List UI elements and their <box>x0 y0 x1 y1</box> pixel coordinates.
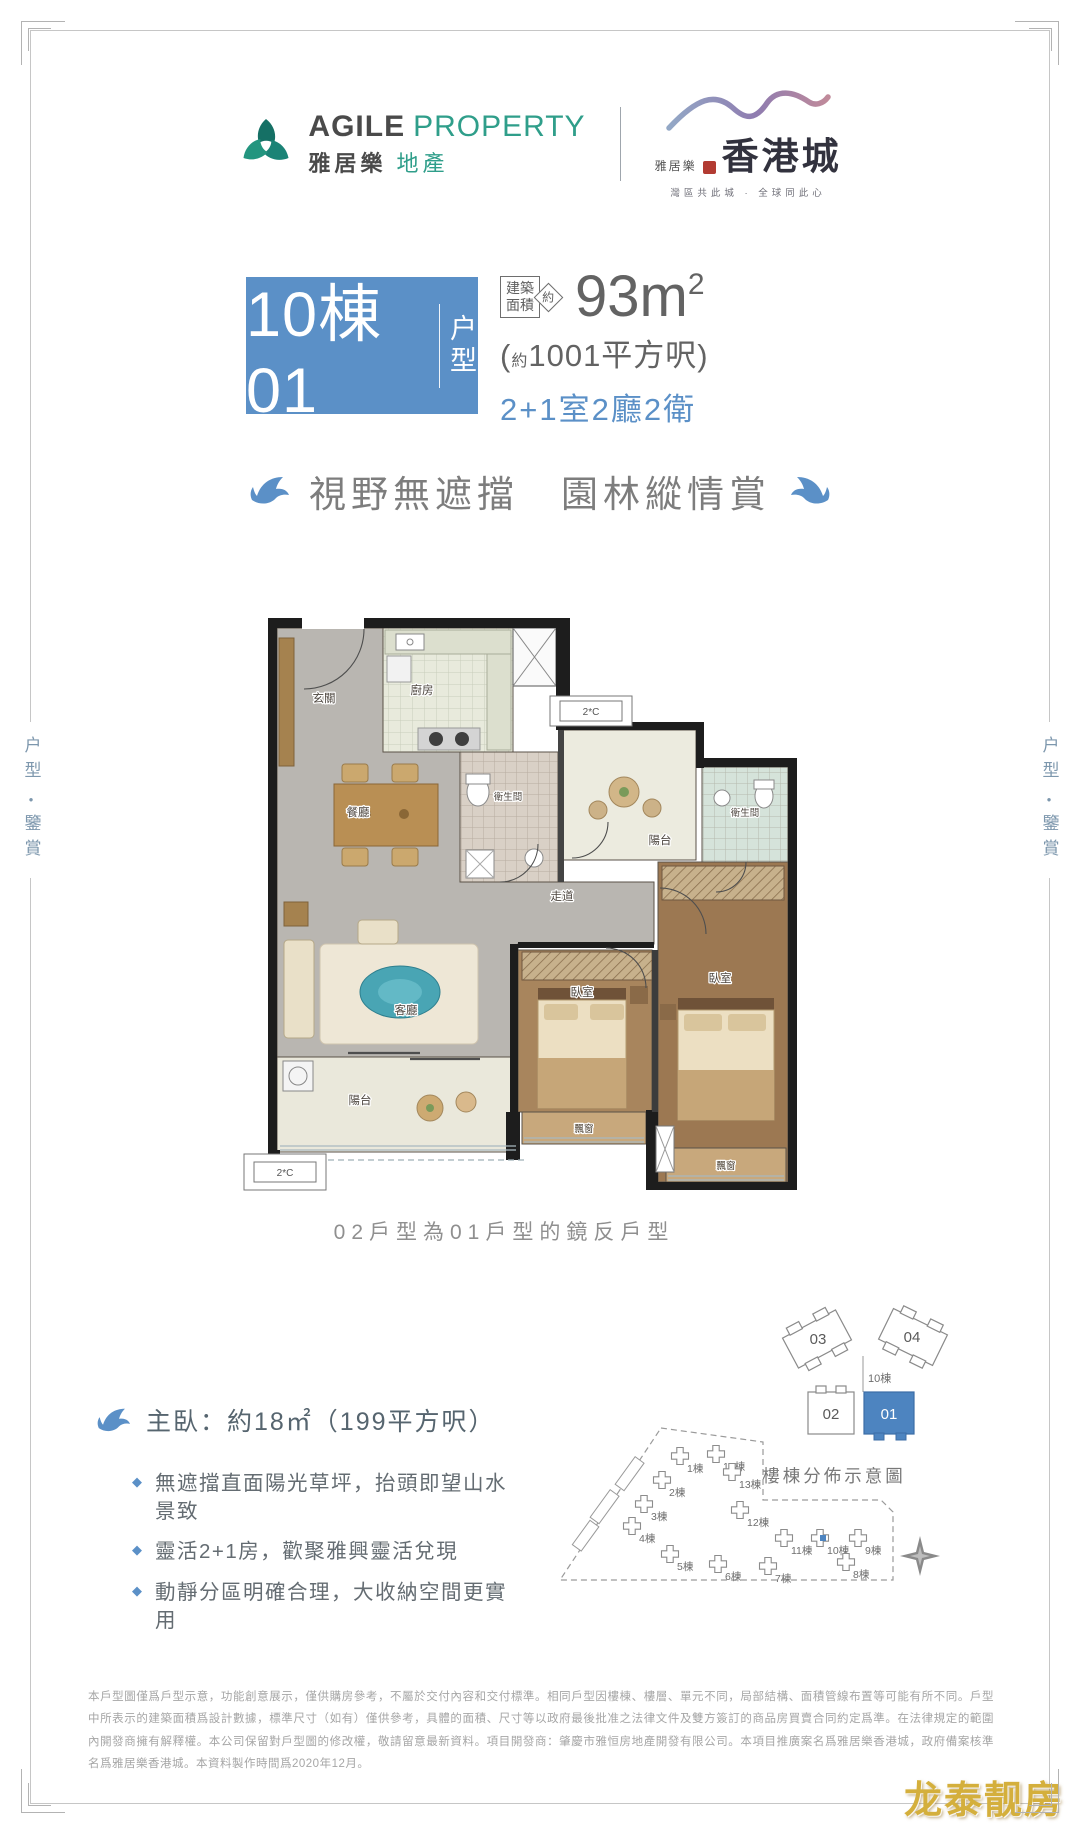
dot-separator-icon: ● <box>1047 796 1052 804</box>
area-row: 建築 面積 約 93m2 <box>500 268 830 326</box>
disclaimer-text: 本戶型圖僅爲戶型示意，功能創意展示，僅供購房參考，不屬於交付內容和交付標準。相同… <box>88 1686 994 1776</box>
site-building-label: 6棟 <box>725 1570 742 1583</box>
room-label-bedroom2: 臥室 <box>709 971 732 985</box>
agile-triangle-icon <box>238 115 294 173</box>
room-label-bath1: 衛生間 <box>494 791 523 803</box>
flyer-page: 户型 ● 鑒賞 户型 ● 鑒賞 AGILEPROPERTY 雅居樂 地產 <box>0 0 1080 1834</box>
feature-bullet: ◆無遮擋直面陽光草坪，抬頭即望山水景致 <box>132 1470 526 1525</box>
ac-label: 2*C <box>583 707 600 718</box>
ac-label: 2*C <box>277 1168 294 1179</box>
layout-spec: 2+1室2廳2衛 <box>500 384 830 429</box>
unit-spec: 建築 面積 約 93m2 (約1001平方呎) 2+1室2廳2衛 <box>500 268 830 429</box>
area-tag-line: 建築 <box>506 280 534 297</box>
site-building: 11棟 <box>776 1530 813 1558</box>
tower-label: 10棟 <box>868 1371 891 1385</box>
site-edge-strips <box>572 1457 644 1551</box>
side-label-text: 鑒賞 <box>19 814 44 864</box>
site-building: 10棟 <box>812 1530 850 1558</box>
agile-name-cn: 雅居樂 <box>308 151 386 176</box>
site-building: 6棟 <box>710 1556 742 1584</box>
room-label-bath2: 衛生間 <box>731 807 760 819</box>
room-label-bedroom1: 臥室 <box>571 985 594 999</box>
unit-suffix-char: 型 <box>450 346 478 377</box>
site-building: 7棟 <box>760 1558 792 1586</box>
hkcity-brand-prefix: 雅居樂 <box>655 157 697 174</box>
agile-wordmark: AGILEPROPERTY 雅居樂 地產 <box>308 110 585 178</box>
tagline-text: 視野無遮擋 園林縱情賞 <box>309 464 771 518</box>
feature-bullet-text: 靈活2+1房，歡聚雅興靈活兌現 <box>155 1538 458 1566</box>
area-tag-line: 面積 <box>506 297 534 314</box>
features-block: 主臥：約18㎡（199平方呎） ◆無遮擋直面陽光草坪，抬頭即望山水景致◆靈活2+… <box>96 1402 526 1647</box>
hkcity-slogan: 灣區共此城 · 全球同此心 <box>670 185 825 199</box>
dolphin-icon <box>249 475 291 507</box>
site-building-label: 13棟 <box>739 1478 762 1491</box>
room-label-corridor: 走道 <box>551 889 574 903</box>
site-building-label: 3棟 <box>651 1510 668 1523</box>
side-label-text: 户型 <box>1037 736 1062 786</box>
side-label-right: 户型 ● 鑒賞 <box>1032 722 1066 878</box>
side-label-left: 户型 ● 鑒賞 <box>14 722 48 878</box>
site-building-label: 1棟 <box>687 1462 704 1475</box>
corner-ornament <box>1015 1769 1059 1813</box>
area-superscript: 2 <box>688 268 705 301</box>
area-hk: (約1001平方呎) <box>500 330 830 375</box>
site-building: 5棟 <box>662 1546 694 1574</box>
compass-icon <box>900 1536 940 1576</box>
brand-seal-icon <box>703 161 716 174</box>
diamond-bullet-icon: ◆ <box>132 1470 142 1495</box>
site-building: 9棟 <box>850 1530 882 1558</box>
room-label-balcony-bottom: 陽台 <box>349 1093 372 1107</box>
unit-suffix: 户 型 <box>450 314 478 376</box>
site-building-label: 2棟 <box>669 1486 686 1499</box>
side-label-text: 鑒賞 <box>1037 814 1062 864</box>
site-building: 1棟 <box>672 1448 704 1476</box>
site-building: 8棟 <box>838 1554 870 1582</box>
site-building-label: 11棟 <box>791 1544 813 1557</box>
agile-property-en: PROPERTY <box>413 110 586 143</box>
feature-bullet: ◆動靜分區明確合理，大收納空間更實用 <box>132 1579 526 1634</box>
room-label-entry: 玄關 <box>313 691 336 705</box>
header-logos: AGILEPROPERTY 雅居樂 地產 雅居樂 香港城 灣區共此城 · 全球同… <box>0 88 1080 199</box>
site-plan-diagram: 樓棟分佈示意圖 1棟14棟2棟13棟3棟4棟12棟11棟10棟9棟5棟6棟7棟8… <box>468 1416 960 1648</box>
dot-separator-icon: ● <box>29 796 34 804</box>
floor-plan: 2*C 2*C 玄關 廚房 衛生間 餐廳 走道 客廳 陽台 衛生間 臥室 臥室 … <box>208 552 800 1220</box>
feature-headline-row: 主臥：約18㎡（199平方呎） <box>96 1402 526 1438</box>
site-building: 12棟 <box>732 1502 770 1530</box>
site-building-label: 5棟 <box>677 1560 694 1573</box>
feature-headline: 主臥：約18㎡（199平方呎） <box>146 1402 496 1438</box>
feature-bullet: ◆靈活2+1房，歡聚雅興靈活兌現 <box>132 1538 526 1566</box>
corner-ornament <box>21 1769 65 1813</box>
feature-bullets: ◆無遮擋直面陽光草坪，抬頭即望山水景致◆靈活2+1房，歡聚雅興靈活兌現◆動靜分區… <box>132 1470 526 1634</box>
agile-logo: AGILEPROPERTY 雅居樂 地產 <box>238 110 585 178</box>
agile-property-cn: 地產 <box>397 151 449 176</box>
dolphin-icon <box>96 1407 132 1434</box>
site-plan-title: 樓棟分佈示意圖 <box>762 1466 906 1486</box>
hkcity-wordmark: 雅居樂 香港城 <box>655 126 842 180</box>
hkcity-logo: 雅居樂 香港城 灣區共此城 · 全球同此心 <box>655 88 842 199</box>
area-value: 93m2 <box>575 268 705 326</box>
room-label-dining: 餐廳 <box>347 805 370 819</box>
unit-04-label: 04 <box>904 1329 921 1346</box>
highlighted-building-marker <box>820 1535 826 1541</box>
site-building-label: 9棟 <box>865 1544 882 1557</box>
unit-title-divider <box>439 304 440 388</box>
unit-suffix-char: 户 <box>450 314 478 345</box>
hkcity-brand-name: 香港城 <box>722 126 842 180</box>
diamond-bullet-icon: ◆ <box>132 1538 142 1563</box>
site-building-label: 12棟 <box>747 1516 770 1529</box>
side-label-text: 户型 <box>19 736 44 786</box>
unit-03-label: 03 <box>810 1331 827 1348</box>
agile-name-en: AGILE <box>308 110 405 143</box>
site-building-label: 7棟 <box>775 1572 792 1585</box>
site-building: 3棟 <box>636 1496 668 1524</box>
site-building-label: 8棟 <box>853 1568 870 1581</box>
room-label-kitchen: 廚房 <box>411 683 434 697</box>
corner-ornament <box>1015 21 1059 65</box>
unit-title-box: 10棟01 户 型 <box>246 277 478 414</box>
site-building: 2棟 <box>654 1472 686 1500</box>
room-label-baywindow1: 飄窗 <box>574 1123 593 1135</box>
diamond-bullet-icon: ◆ <box>132 1579 142 1604</box>
unit-number: 10棟01 <box>246 264 427 427</box>
tagline-row: 視野無遮擋 園林縱情賞 <box>0 464 1080 518</box>
site-building-label: 4棟 <box>639 1532 656 1545</box>
room-label-living: 客廳 <box>395 1003 418 1017</box>
dolphin-icon <box>789 475 831 507</box>
mirror-note: 02戶型為01戶型的鏡反戶型 <box>208 1216 800 1246</box>
room-label-balcony-top: 陽台 <box>649 833 672 847</box>
logo-divider <box>620 107 621 181</box>
corner-ornament <box>21 21 65 65</box>
room-label-baywindow2: 飄窗 <box>716 1160 735 1172</box>
